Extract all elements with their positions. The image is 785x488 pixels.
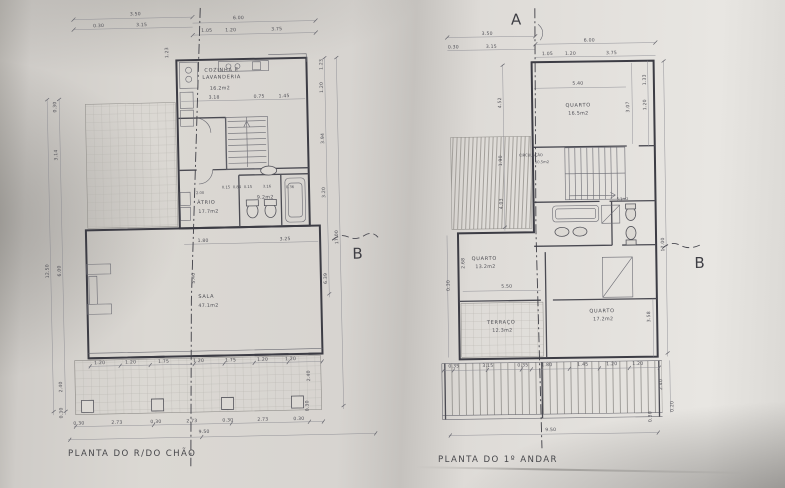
dim-label: 1.05 — [542, 51, 553, 57]
dim-label: 3.50 — [130, 11, 141, 17]
dim-label: 1.80 — [198, 238, 209, 244]
wardrobe — [602, 257, 633, 297]
dim-label: 2.68 — [460, 258, 466, 269]
dim-label: 6.00 — [584, 37, 595, 43]
dim-label: 0.30 — [59, 407, 65, 418]
dim-label: 3.15 — [482, 363, 493, 369]
washbasin-icon — [261, 166, 277, 175]
floor-plan-drawing: 3.50 6.00 0.30 3.15 1.05 1.20 3.75 1.23 … — [0, 0, 785, 488]
shower-diagonal — [602, 205, 620, 223]
room-label-kitchen: LAVANDERIA — [202, 74, 241, 81]
living-block-walls — [86, 225, 323, 358]
dim-label: 2.73 — [257, 417, 268, 423]
dim-label: 5.40 — [572, 81, 583, 87]
dim-label: 3.94 — [320, 133, 326, 144]
sink-bowl-icon — [186, 76, 192, 82]
room-area-kitchen: 16.2m2 — [210, 85, 230, 91]
dim-label: 4.03 — [498, 198, 504, 209]
staircase — [565, 147, 626, 200]
dim-label: 0.30 — [150, 419, 161, 425]
bidet-icon — [626, 226, 636, 239]
interior-walls — [178, 116, 310, 229]
room-label-quarto3: QUARTO — [589, 308, 614, 314]
wardrobe-diagonal — [602, 257, 633, 297]
dim-label: 3.18 — [209, 95, 220, 101]
fireplace — [87, 264, 112, 314]
dim-label: 1.75 — [225, 357, 236, 363]
section-line-b-wavy — [662, 243, 700, 248]
room-area-quarto2: 13.2m2 — [475, 264, 495, 270]
dim-label: 3.14 — [53, 149, 59, 160]
side-patio-paving — [85, 102, 178, 228]
room-area-quarto3: 17.2m2 — [593, 316, 613, 322]
dim-label: 0.84 — [233, 185, 242, 189]
dim-label: 2.40 — [658, 379, 664, 390]
room-area-quarto1: 16.5m2 — [568, 111, 588, 117]
dim-label: 3.58 — [646, 311, 652, 322]
room-area-bath: 5.1m2 — [617, 197, 629, 201]
dim-label: 1.20 — [319, 82, 325, 93]
plan-title-ground-floor: PLANTA DO R/DO CHÃO — [68, 448, 196, 459]
bathtub-inner — [556, 208, 596, 219]
dim-label: 3.50 — [482, 31, 493, 37]
bathtub-icon — [553, 205, 599, 222]
dim-label: 0.30 — [293, 416, 304, 422]
section-line-squiggle — [538, 24, 543, 40]
dim-label: 0.15 — [244, 185, 253, 189]
lower-roof-hatch — [451, 136, 532, 229]
dim-label: 17.00 — [660, 237, 666, 251]
dim-label: 3.25 — [280, 236, 291, 242]
dim-label: 2.73 — [111, 420, 122, 426]
section-marker-b: B — [694, 254, 705, 272]
toilet-tank — [626, 204, 636, 209]
plan-title-first-floor: PLANTA DO 1º ANDAR — [438, 455, 558, 465]
dim-label: 1.33 — [642, 74, 648, 85]
dim-label: 1.20 — [94, 360, 105, 366]
floor-plan-photo: 3.50 6.00 0.30 3.15 1.05 1.20 3.75 1.23 … — [0, 0, 785, 488]
room-label-terraco: TERRAÇO — [486, 320, 516, 326]
dim-label: 0.30 — [222, 417, 233, 423]
dim-label: 1.20 — [257, 357, 268, 363]
dim-label: 0.30 — [52, 101, 58, 112]
dim-label: 0.30 — [448, 44, 459, 50]
pergola — [442, 361, 663, 420]
dim-label: 1.80 — [541, 362, 552, 368]
dim-label: 1.90 — [498, 155, 504, 166]
bidet-base — [626, 240, 636, 245]
room-area-atrio: 17.7m2 — [198, 209, 218, 215]
dim-label: 3.16 — [263, 184, 272, 188]
dim-label: 0.20 — [669, 401, 675, 412]
dim-label: 0.35 — [517, 362, 528, 368]
dim-label: 2.73 — [186, 418, 197, 424]
dim-label: 1.20 — [225, 27, 236, 33]
dim-label: 3.15 — [136, 22, 147, 28]
dim-label: 1.20 — [285, 356, 296, 362]
stair-treads — [565, 147, 626, 200]
ground-floor-plan: 3.50 6.00 0.30 3.15 1.05 1.20 3.75 1.23 … — [39, 4, 383, 469]
dim-label: 2.40 — [58, 381, 64, 392]
sink-bowl-icon — [185, 67, 191, 73]
section-marker-a: A — [511, 10, 522, 28]
room-area-circulacao: 10.5m2 — [535, 160, 549, 164]
dim-label: 2.40 — [306, 370, 312, 381]
room-label-kitchen: COZINHA E — [204, 67, 238, 74]
room-label-atrio: ÁTRIO — [197, 199, 216, 206]
dim-label: 1.75 — [158, 359, 169, 365]
dim-label: 1.20 — [565, 51, 576, 57]
stair-treads — [228, 117, 267, 168]
first-floor-plan: 3.50 6.00 0.30 3.15 1.05 1.20 3.75 4.52 … — [437, 6, 707, 450]
dim-label: 9.50 — [545, 427, 556, 433]
dim-label: 5.50 — [501, 284, 512, 290]
room-area-bath: 9.2m2 — [257, 194, 274, 200]
front-terrace-paving — [75, 356, 322, 415]
room-label-quarto1: QUARTO — [565, 102, 590, 108]
dim-label: 0.35 — [448, 363, 459, 369]
dim-label: 6.39 — [323, 273, 329, 284]
pergola-slats — [442, 361, 663, 416]
dim-label: 1.20 — [606, 361, 617, 367]
dim-label: 6.00 — [57, 265, 63, 276]
dim-label: 3.20 — [321, 187, 327, 198]
dim-label: 4.52 — [497, 97, 503, 108]
dim-label: 0.30 — [73, 420, 84, 426]
room-label-circulacao: CIRCULAÇÃO — [519, 152, 543, 157]
dim-label: 12.50 — [45, 264, 51, 278]
dim-label: 17.00 — [334, 230, 340, 244]
room-label-sala: SALA — [198, 294, 214, 300]
dim-label: 1.23 — [164, 47, 170, 58]
dim-label: 1.20 — [193, 358, 204, 364]
washbasin-icon — [573, 227, 587, 236]
room-label-quarto2: QUARTO — [472, 256, 497, 262]
dim-label: 3.75 — [606, 50, 617, 56]
dim-label: 3.15 — [486, 44, 497, 50]
dim-label: 2.00 — [196, 191, 205, 195]
dim-label: 1.20 — [125, 359, 136, 365]
room-area-terraco: 12.3m2 — [492, 328, 512, 334]
atrium-closet — [180, 192, 191, 220]
dim-label: 1.23 — [318, 59, 324, 70]
dim-label: 0.15 — [222, 185, 231, 189]
dim-label: 0.30 — [647, 411, 653, 422]
washbasin-icon — [555, 227, 569, 236]
dim-label: 1.20 — [632, 361, 643, 367]
dim-label: 0.30 — [304, 400, 310, 411]
dim-label: 3.75 — [271, 26, 282, 32]
dim-label: 1.20 — [642, 99, 648, 110]
door-swing-arcs — [196, 118, 213, 184]
dim-label: 6.00 — [233, 15, 244, 21]
dim-label: 1.45 — [279, 93, 290, 99]
room-area-sala: 47.1m2 — [198, 303, 218, 309]
dim-label: 0.36 — [286, 185, 295, 189]
dim-label: 1.45 — [577, 362, 588, 368]
staircase — [226, 117, 269, 170]
dim-label: 3.07 — [625, 101, 631, 112]
dim-label: 1.05 — [201, 28, 212, 34]
dim-label: 0.75 — [254, 94, 265, 100]
dim-label: 9.50 — [199, 429, 210, 435]
section-marker-b: B — [352, 245, 363, 263]
dim-label: 0.30 — [93, 23, 104, 29]
dim-label: 0.30 — [446, 280, 452, 291]
bathroom-fixtures — [553, 204, 637, 246]
dim-label: 5.40 — [191, 273, 197, 284]
